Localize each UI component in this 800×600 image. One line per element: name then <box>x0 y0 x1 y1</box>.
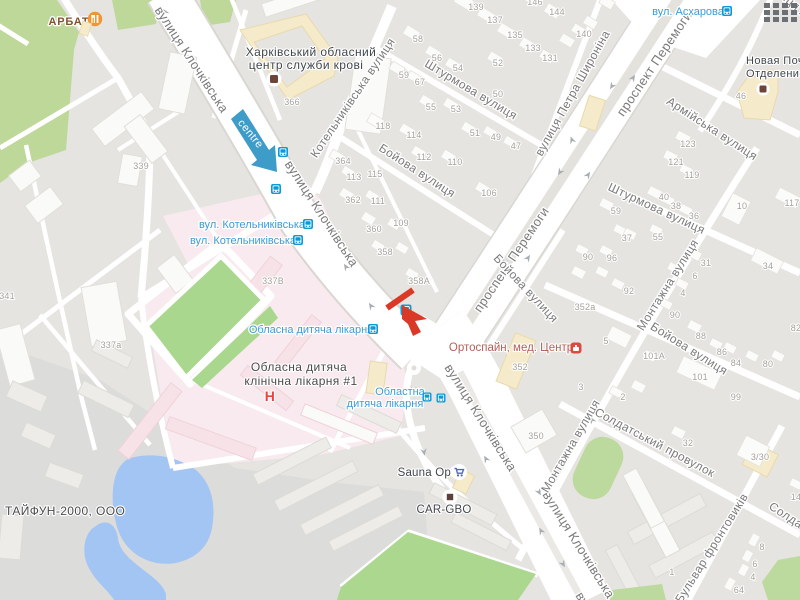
svg-text:55: 55 <box>426 102 436 112</box>
svg-text:Обласна дитяча: Обласна дитяча <box>251 360 347 374</box>
svg-text:Ортоспайн, мед. Центр: Ортоспайн, мед. Центр <box>449 342 573 354</box>
svg-text:6: 6 <box>752 559 757 569</box>
svg-text:115: 115 <box>368 169 383 179</box>
svg-text:дитяча лікарня: дитяча лікарня <box>347 398 424 410</box>
svg-text:Областна: Областна <box>375 386 426 398</box>
svg-text:46: 46 <box>736 91 746 101</box>
svg-text:352a: 352a <box>575 302 596 312</box>
svg-text:36: 36 <box>689 211 699 221</box>
svg-text:88: 88 <box>696 331 706 341</box>
svg-text:139: 139 <box>468 2 484 12</box>
svg-text:67: 67 <box>415 77 425 87</box>
svg-text:82: 82 <box>791 323 800 333</box>
svg-text:109: 109 <box>393 218 409 228</box>
svg-text:80: 80 <box>763 359 773 369</box>
svg-text:4: 4 <box>680 288 685 298</box>
svg-text:337B: 337B <box>262 276 284 286</box>
svg-text:центр служби крові: центр служби крові <box>249 58 364 72</box>
svg-text:31: 31 <box>701 258 711 268</box>
svg-text:106: 106 <box>481 188 497 198</box>
svg-text:113: 113 <box>347 172 362 182</box>
svg-text:84: 84 <box>731 358 741 368</box>
svg-text:64: 64 <box>734 585 744 595</box>
svg-text:90: 90 <box>670 310 680 320</box>
svg-text:Новая Почта: Новая Почта <box>746 55 800 67</box>
svg-text:362: 362 <box>345 195 361 205</box>
svg-text:110: 110 <box>448 157 463 167</box>
svg-text:вул. Котельниківська: вул. Котельниківська <box>190 235 297 247</box>
svg-text:54: 54 <box>453 63 463 73</box>
svg-text:364: 364 <box>335 156 351 166</box>
svg-text:337a: 337a <box>101 340 122 350</box>
svg-text:119: 119 <box>685 170 700 180</box>
svg-text:112: 112 <box>417 152 432 162</box>
svg-text:140: 140 <box>576 29 592 39</box>
svg-text:55: 55 <box>653 232 663 242</box>
svg-text:Обласна дитяча лікарня: Обласна дитяча лікарня <box>249 324 373 336</box>
svg-text:CAR-GBO: CAR-GBO <box>416 504 471 516</box>
svg-text:366: 366 <box>284 97 300 107</box>
svg-text:144: 144 <box>549 7 565 17</box>
svg-text:10: 10 <box>737 201 747 211</box>
svg-text:4: 4 <box>750 572 755 582</box>
svg-text:92: 92 <box>624 286 634 296</box>
svg-text:137: 137 <box>487 15 503 25</box>
svg-text:1: 1 <box>669 567 674 577</box>
svg-text:Отделение №: Отделение № <box>746 68 800 80</box>
svg-text:50: 50 <box>493 89 503 99</box>
svg-text:3: 3 <box>578 382 583 392</box>
svg-text:52: 52 <box>493 58 503 68</box>
svg-text:58: 58 <box>413 34 423 44</box>
svg-text:358: 358 <box>377 247 393 257</box>
svg-text:339: 339 <box>133 161 149 171</box>
svg-text:34: 34 <box>763 261 773 271</box>
svg-text:123: 123 <box>680 139 696 149</box>
svg-text:358A: 358A <box>408 276 430 286</box>
svg-text:6: 6 <box>692 271 697 281</box>
svg-text:38: 38 <box>671 201 681 211</box>
svg-text:350: 350 <box>528 431 544 441</box>
svg-text:2: 2 <box>620 392 625 402</box>
svg-text:135: 135 <box>507 30 523 40</box>
svg-text:360: 360 <box>366 224 382 234</box>
svg-text:49: 49 <box>491 132 501 142</box>
svg-text:40: 40 <box>659 192 669 202</box>
svg-text:Харківський обласний: Харківський обласний <box>246 45 376 59</box>
svg-text:вул. Котельниківська: вул. Котельниківська <box>199 219 306 231</box>
svg-text:111: 111 <box>371 196 385 206</box>
svg-text:99: 99 <box>731 392 741 402</box>
svg-text:59: 59 <box>611 206 621 216</box>
svg-text:14: 14 <box>791 492 800 502</box>
svg-text:5: 5 <box>603 336 608 346</box>
svg-text:133: 133 <box>525 43 541 53</box>
svg-text:352: 352 <box>512 362 528 372</box>
svg-text:32: 32 <box>683 438 693 448</box>
svg-text:51: 51 <box>470 128 480 138</box>
svg-text:101: 101 <box>692 372 708 382</box>
svg-text:90: 90 <box>583 252 593 262</box>
svg-text:8: 8 <box>759 542 764 552</box>
svg-text:Sauna Opt: Sauna Opt <box>398 467 455 479</box>
svg-text:121: 121 <box>668 157 684 167</box>
svg-text:118: 118 <box>376 121 391 131</box>
svg-text:вул. Асхарова: вул. Асхарова <box>652 6 725 18</box>
svg-text:56: 56 <box>432 53 442 63</box>
svg-text:клінічна лікарня #1: клінічна лікарня #1 <box>244 374 357 388</box>
svg-text:101A: 101A <box>643 351 665 361</box>
svg-text:96: 96 <box>607 253 617 263</box>
svg-text:59: 59 <box>399 70 409 80</box>
svg-text:86: 86 <box>717 347 727 357</box>
svg-text:114: 114 <box>407 130 422 140</box>
svg-text:341: 341 <box>0 291 15 301</box>
svg-text:146: 146 <box>527 0 543 7</box>
svg-text:47: 47 <box>511 141 521 151</box>
svg-text:H: H <box>265 388 276 404</box>
svg-text:117: 117 <box>785 198 800 208</box>
svg-text:3/30: 3/30 <box>751 452 769 462</box>
svg-text:53: 53 <box>451 104 461 114</box>
svg-text:131: 131 <box>542 53 558 63</box>
svg-text:37: 37 <box>622 233 632 243</box>
svg-text:ТАЙФУН-2000, ООО: ТАЙФУН-2000, ООО <box>5 503 125 518</box>
